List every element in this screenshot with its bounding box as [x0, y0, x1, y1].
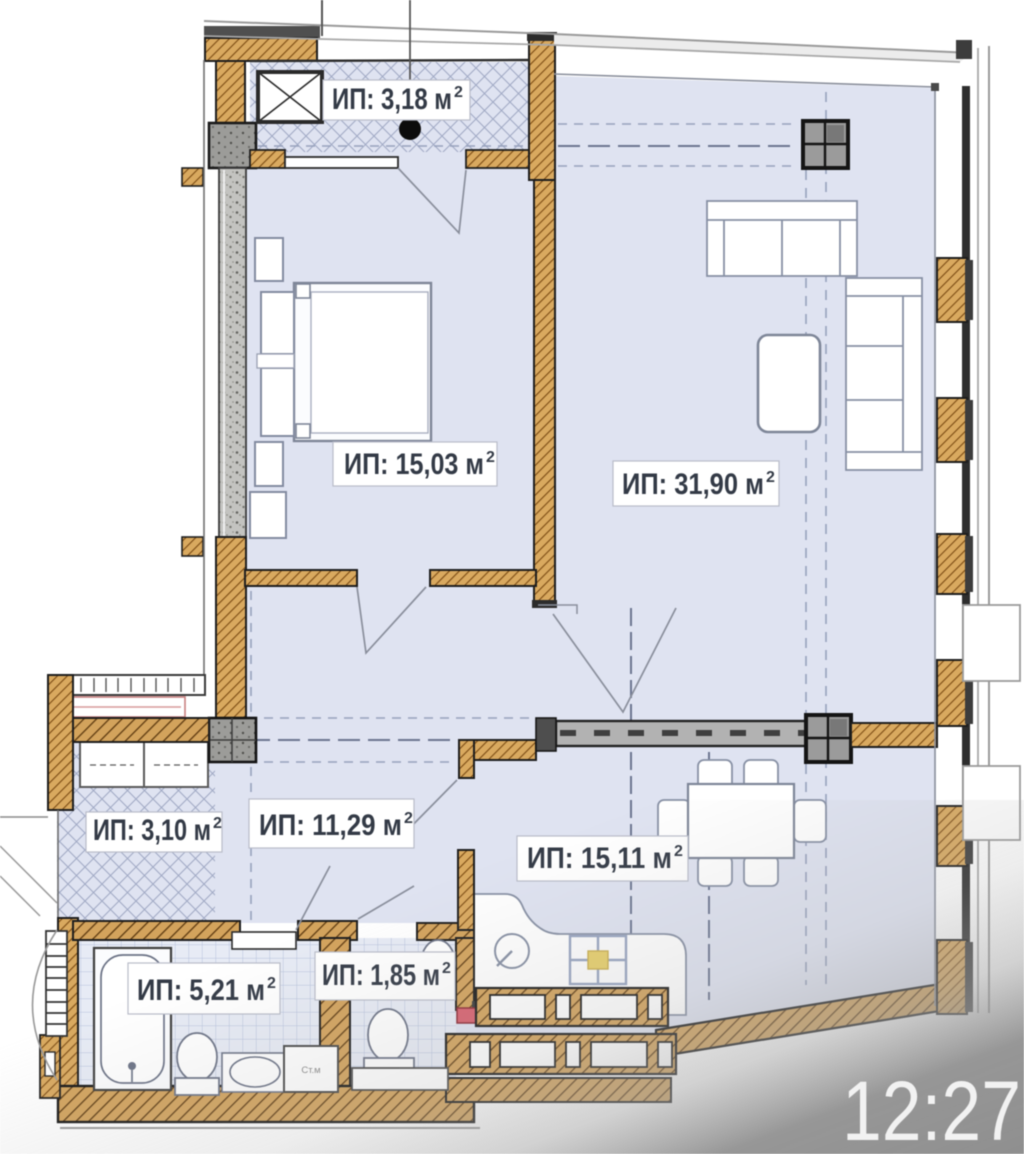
svg-text:ИП: 31,90 м: ИП: 31,90 м [622, 468, 764, 501]
svg-text:ИП: 3,18 м: ИП: 3,18 м [332, 83, 452, 116]
svg-text:2: 2 [454, 84, 463, 101]
svg-text:ИП: 15,03 м: ИП: 15,03 м [344, 448, 484, 481]
svg-text:12:27: 12:27 [842, 1064, 1021, 1154]
svg-text:2: 2 [486, 449, 495, 466]
svg-text:2: 2 [766, 469, 775, 486]
